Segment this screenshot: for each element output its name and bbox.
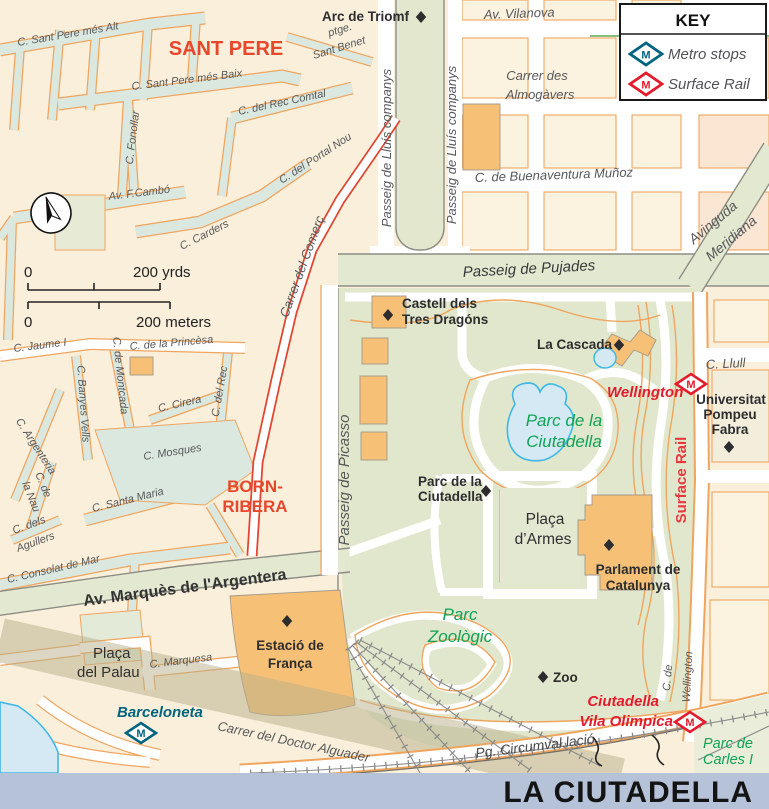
scale-meters-label: 200 meters <box>136 314 211 331</box>
poi-parc-ciutadella: Ciutadella <box>418 489 483 504</box>
poi-placa-armes: d’Armes <box>515 531 572 548</box>
scale-yards-zero: 0 <box>24 264 32 281</box>
poi-estacio: Estació de <box>256 638 324 653</box>
poi-parc-ciutadella: Parc de la <box>418 474 482 489</box>
park-label-carles: Carles I <box>703 752 753 768</box>
park-label-carles: Parc de <box>703 736 753 752</box>
street-label: Passeig de Lluís companys <box>444 65 459 224</box>
surface-rail-road-label: Surface Rail <box>673 437 690 524</box>
street-label: Passeig de Lluís companys <box>379 68 394 227</box>
key-legend: KEY M Metro stops M Surface Rail <box>620 4 766 100</box>
street-label: C. de <box>661 664 675 691</box>
key-metro-label: Metro stops <box>668 46 747 63</box>
svg-text:M: M <box>641 50 650 62</box>
station-label-barceloneta: Barceloneta <box>117 704 203 721</box>
key-rail-label: Surface Rail <box>668 76 750 93</box>
scale-meters-zero: 0 <box>24 314 32 331</box>
street-label: Almogàvers <box>505 87 575 102</box>
street-label: Plaça <box>93 645 131 662</box>
poi-castell: Tres Dragóns <box>402 312 488 327</box>
park-label-ciutadella: Ciutadella <box>526 432 602 451</box>
poi-estacio: França <box>268 656 313 671</box>
poi-universitat: Fabra <box>712 422 749 437</box>
scale-yards-label: 200 yrds <box>133 264 191 281</box>
poi-parlament: Catalunya <box>606 578 671 593</box>
building-block <box>463 104 500 170</box>
park-label-ciutadella: Parc de la <box>526 411 603 430</box>
district-label-sant-pere: SANT PERE <box>169 38 283 60</box>
key-title: KEY <box>676 11 712 30</box>
poi-parlament: Parlament de <box>596 562 681 577</box>
poi-castell: Castell dels <box>402 296 477 311</box>
svg-text:M: M <box>641 80 650 92</box>
footer-band: LA CIUTADELLA <box>0 773 769 809</box>
poi-cascada: La Cascada <box>537 337 613 352</box>
station-label-ciutadella: Ciutadella <box>587 693 659 710</box>
map-page: C. Sant Pere més Alt ptge. Sant Benet C.… <box>0 0 769 809</box>
page-title: LA CIUTADELLA <box>503 776 753 809</box>
map-canvas: C. Sant Pere més Alt ptge. Sant Benet C.… <box>0 0 769 809</box>
station-label-wellington: Wellington <box>607 384 683 401</box>
svg-text:M: M <box>686 379 695 391</box>
district-label-ribera: RIBERA <box>222 497 287 516</box>
street-label: Carrer des <box>506 68 568 83</box>
street-label: C. Llull <box>705 355 747 372</box>
park-label-zoologic: Zoològic <box>427 627 493 646</box>
park-label-zoologic: Parc <box>443 605 478 624</box>
svg-text:M: M <box>136 728 145 740</box>
poi-universitat: Pompeu <box>703 407 756 422</box>
street-label: Passeig de Picasso <box>336 415 353 546</box>
poi-zoo: Zoo <box>553 670 578 685</box>
poi-universitat: Universitat <box>696 392 766 407</box>
svg-text:M: M <box>685 717 694 729</box>
station-label-ciutadella: Vila Olimpica <box>579 713 673 730</box>
street-label: Av. Vilanova <box>483 5 555 22</box>
lluis-companys-promenade <box>396 0 444 250</box>
district-label-born: BORN- <box>227 477 283 496</box>
street-label: del Palau <box>77 664 140 681</box>
poi-placa-armes: Plaça <box>526 511 565 528</box>
poi-arc-de-triomf: Arc de Triomf <box>322 9 410 24</box>
